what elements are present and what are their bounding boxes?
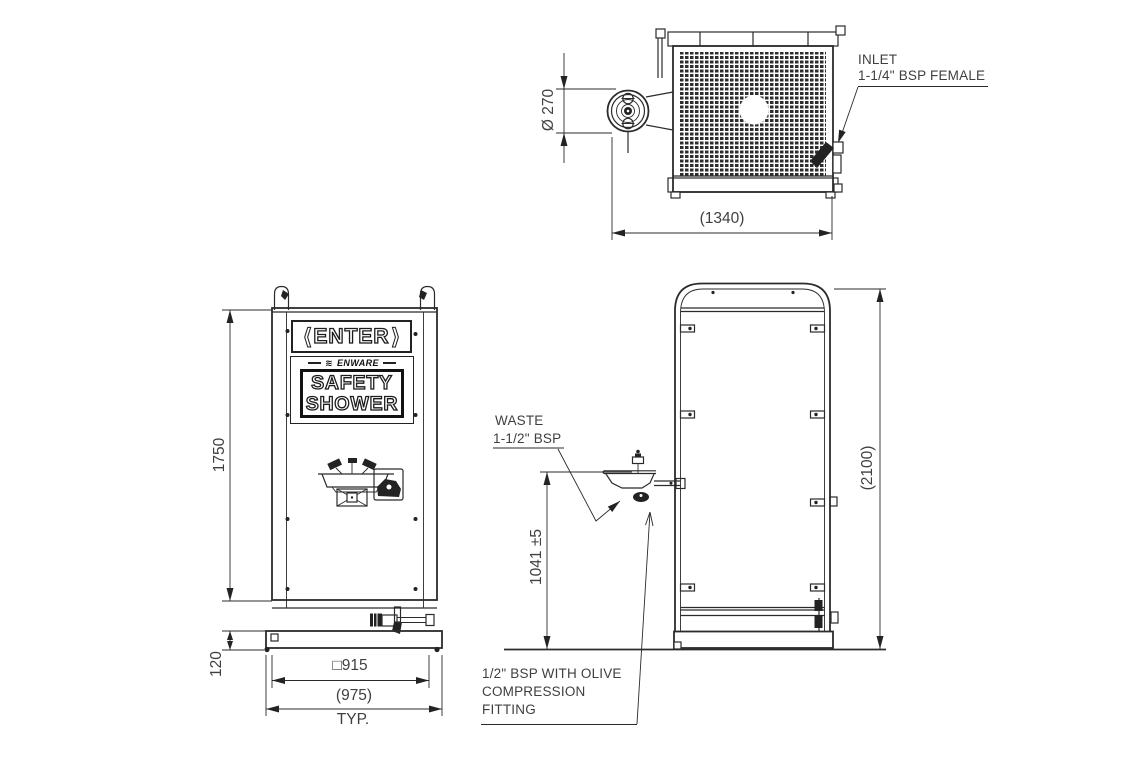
dim-base-120 bbox=[222, 631, 266, 650]
dim-width-1340-text: (1340) bbox=[700, 210, 745, 228]
dim-base-120-text: 120 bbox=[208, 651, 226, 677]
anchor-bolt-right bbox=[434, 647, 439, 652]
sign-line-shower: SHOWER bbox=[306, 394, 399, 415]
drawing-linework bbox=[0, 0, 1140, 760]
enter-sign-text: ENTER bbox=[313, 326, 389, 347]
bottom-rails bbox=[681, 608, 825, 616]
eyewash-top-view bbox=[608, 91, 674, 154]
eyewash-side-view bbox=[603, 450, 685, 502]
dim-height-1750-text: 1750 bbox=[211, 438, 229, 472]
fitting-label-line2: COMPRESSION bbox=[482, 684, 585, 699]
front-posts bbox=[275, 287, 435, 311]
waste-label-line1: WASTE bbox=[495, 413, 544, 428]
grating-frame bbox=[668, 46, 842, 198]
brand-rule-left bbox=[308, 362, 321, 364]
enter-left-arrow-icon: ⟨ bbox=[302, 326, 312, 348]
dim-diameter-270-text: Ø 270 bbox=[540, 89, 558, 131]
sign-line-safety: SAFETY bbox=[311, 373, 393, 394]
safety-shower-sign: ≋ ENWARE SAFETY SHOWER bbox=[290, 356, 414, 424]
door-latch bbox=[815, 598, 839, 632]
waste-leader bbox=[493, 448, 620, 521]
side-frame-outer bbox=[675, 284, 830, 633]
dim-typ-text: TYP. bbox=[337, 711, 369, 729]
enter-right-arrow-icon: ⟩ bbox=[391, 326, 401, 348]
brand-wave-icon: ≋ bbox=[325, 359, 333, 368]
side-base bbox=[674, 632, 833, 650]
side-panel-top bbox=[681, 308, 825, 312]
side-frame-inner bbox=[681, 289, 825, 632]
brand-rule-right bbox=[383, 362, 396, 364]
wall-brackets bbox=[681, 325, 838, 591]
dim-bowl-1041 bbox=[540, 472, 632, 649]
inlet-fitting bbox=[810, 142, 843, 173]
fitting-label-line1: 1/2" BSP WITH OLIVE bbox=[482, 666, 622, 681]
anchor-bolt-left bbox=[264, 647, 269, 652]
valve-assembly-front bbox=[370, 607, 434, 634]
safety-shower-panel: SAFETY SHOWER bbox=[300, 369, 404, 418]
valve-handle-top bbox=[810, 142, 834, 168]
side-view bbox=[481, 284, 886, 725]
dim-base-975-text: (975) bbox=[336, 687, 372, 705]
brand-logo: ENWARE bbox=[337, 359, 379, 368]
waste-label-line2: 1-1/2" BSP bbox=[493, 431, 561, 446]
eyewash-front-view bbox=[318, 458, 403, 506]
dim-height-1750 bbox=[222, 310, 272, 601]
dim-overall-2100-text: (2100) bbox=[859, 446, 877, 491]
fitting-label-line3: FITTING bbox=[482, 702, 536, 717]
brand-row: ≋ ENWARE bbox=[291, 357, 413, 369]
front-base bbox=[264, 631, 442, 652]
inlet-label-line1: INLET bbox=[858, 52, 897, 67]
engineering-drawing-safety-shower: ⟨ ENTER ⟩ ≋ ENWARE SAFETY SHOWER INLET 1… bbox=[0, 0, 1140, 760]
dim-bowl-1041-text: 1041 ±5 bbox=[528, 529, 546, 585]
top-view bbox=[556, 26, 988, 240]
inlet-leader bbox=[838, 87, 988, 144]
dim-panel-915-text: □915 bbox=[332, 657, 367, 675]
top-frame bbox=[656, 26, 845, 78]
enter-sign: ⟨ ENTER ⟩ bbox=[291, 320, 412, 353]
inlet-label-line2: 1-1/4" BSP FEMALE bbox=[858, 68, 985, 83]
